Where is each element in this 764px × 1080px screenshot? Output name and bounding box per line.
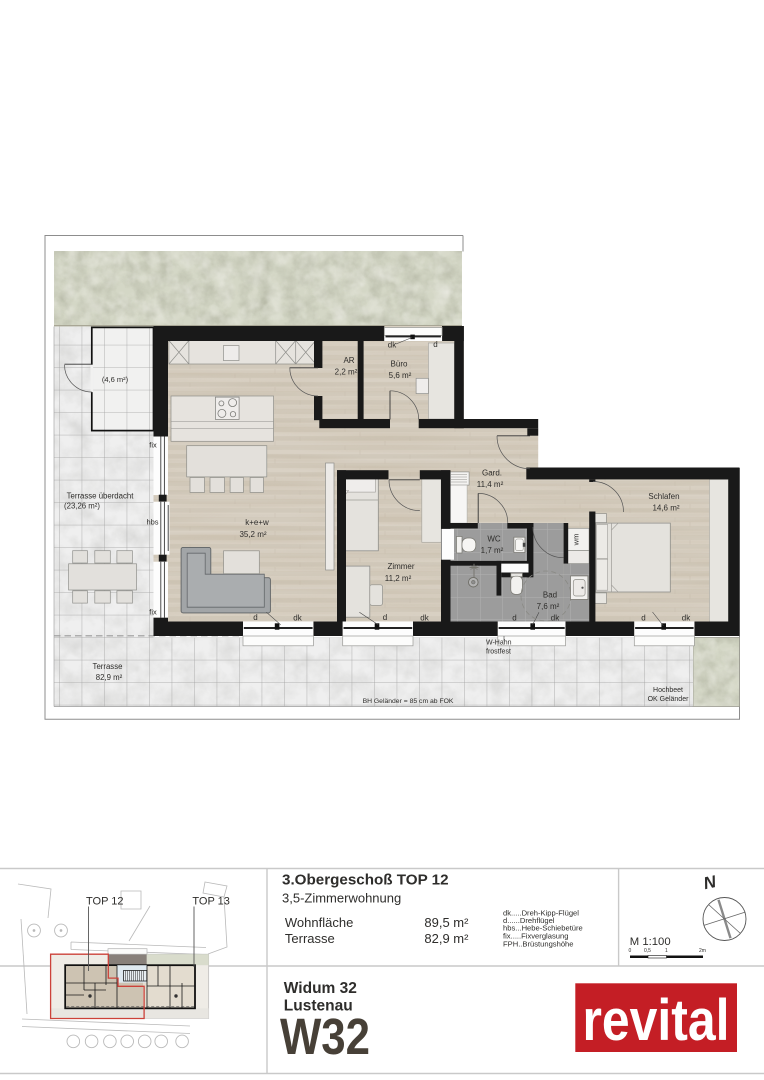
svg-text:dk: dk [293, 614, 302, 623]
svg-text:5,6 m²: 5,6 m² [389, 371, 412, 380]
svg-text:d: d [253, 613, 257, 622]
svg-text:82,9 m²: 82,9 m² [424, 931, 469, 946]
svg-text:Terrasse: Terrasse [93, 662, 123, 671]
svg-text:Terrasse: Terrasse [285, 931, 335, 946]
svg-text:Büro: Büro [391, 360, 408, 369]
svg-text:dk: dk [420, 614, 429, 623]
svg-text:(23,26 m²): (23,26 m²) [64, 502, 100, 511]
svg-text:2,2 m²: 2,2 m² [335, 368, 358, 377]
svg-text:TOP 13: TOP 13 [192, 896, 230, 908]
svg-text:hbs: hbs [146, 518, 158, 527]
svg-text:d: d [433, 340, 437, 349]
svg-text:fix: fix [149, 441, 157, 450]
svg-text:revital: revital [583, 988, 730, 1053]
svg-text:d: d [641, 614, 645, 623]
svg-text:FPH..Brüstungshöhe: FPH..Brüstungshöhe [503, 940, 574, 949]
svg-text:0: 0 [629, 948, 632, 954]
svg-text:3.Obergeschoß TOP 12: 3.Obergeschoß TOP 12 [282, 872, 449, 889]
svg-text:2m: 2m [699, 948, 706, 954]
svg-text:Hochbeet: Hochbeet [653, 687, 683, 694]
svg-text:BH Geländer = 85 cm ab FOK: BH Geländer = 85 cm ab FOK [363, 698, 454, 705]
svg-text:d: d [512, 614, 516, 623]
svg-text:wm: wm [572, 534, 581, 547]
svg-text:(4,6 m²): (4,6 m²) [102, 375, 129, 384]
svg-text:35,2 m²: 35,2 m² [239, 530, 266, 539]
svg-text:82,9 m²: 82,9 m² [96, 673, 123, 682]
svg-text:dk: dk [682, 614, 691, 623]
svg-text:Bad: Bad [543, 591, 557, 600]
svg-text:Schlafen: Schlafen [648, 492, 679, 501]
svg-text:Wohnfläche: Wohnfläche [285, 915, 353, 930]
svg-text:W32: W32 [280, 1008, 370, 1065]
svg-text:k+e+w: k+e+w [245, 518, 269, 527]
svg-text:dk: dk [388, 341, 397, 350]
svg-text:TOP 12: TOP 12 [86, 896, 124, 908]
svg-text:7,6 m²: 7,6 m² [537, 602, 560, 611]
svg-text:AR: AR [343, 356, 354, 365]
svg-text:WC: WC [487, 535, 501, 544]
svg-text:fix: fix [149, 608, 157, 617]
svg-text:11,2 m²: 11,2 m² [385, 574, 412, 583]
svg-text:14,6 m²: 14,6 m² [652, 504, 679, 513]
svg-text:Gard.: Gard. [482, 469, 502, 478]
svg-text:89,5 m²: 89,5 m² [424, 915, 469, 930]
svg-text:3,5-Zimmerwohnung: 3,5-Zimmerwohnung [282, 891, 401, 906]
svg-text:Terrasse überdacht: Terrasse überdacht [67, 492, 135, 501]
svg-text:Zimmer: Zimmer [387, 562, 414, 571]
svg-text:M 1:100: M 1:100 [630, 936, 671, 948]
svg-text:dk: dk [551, 614, 560, 623]
svg-text:frostfest: frostfest [486, 649, 511, 656]
svg-text:0,5: 0,5 [644, 948, 651, 954]
svg-text:OK Geländer: OK Geländer [648, 696, 690, 703]
svg-text:1: 1 [665, 948, 668, 954]
svg-text:Widum 32: Widum 32 [284, 980, 357, 997]
svg-text:d: d [383, 613, 387, 622]
svg-text:W-Hahn: W-Hahn [486, 640, 512, 647]
svg-text:1,7 m²: 1,7 m² [481, 546, 504, 555]
svg-text:11,4 m²: 11,4 m² [477, 480, 504, 489]
